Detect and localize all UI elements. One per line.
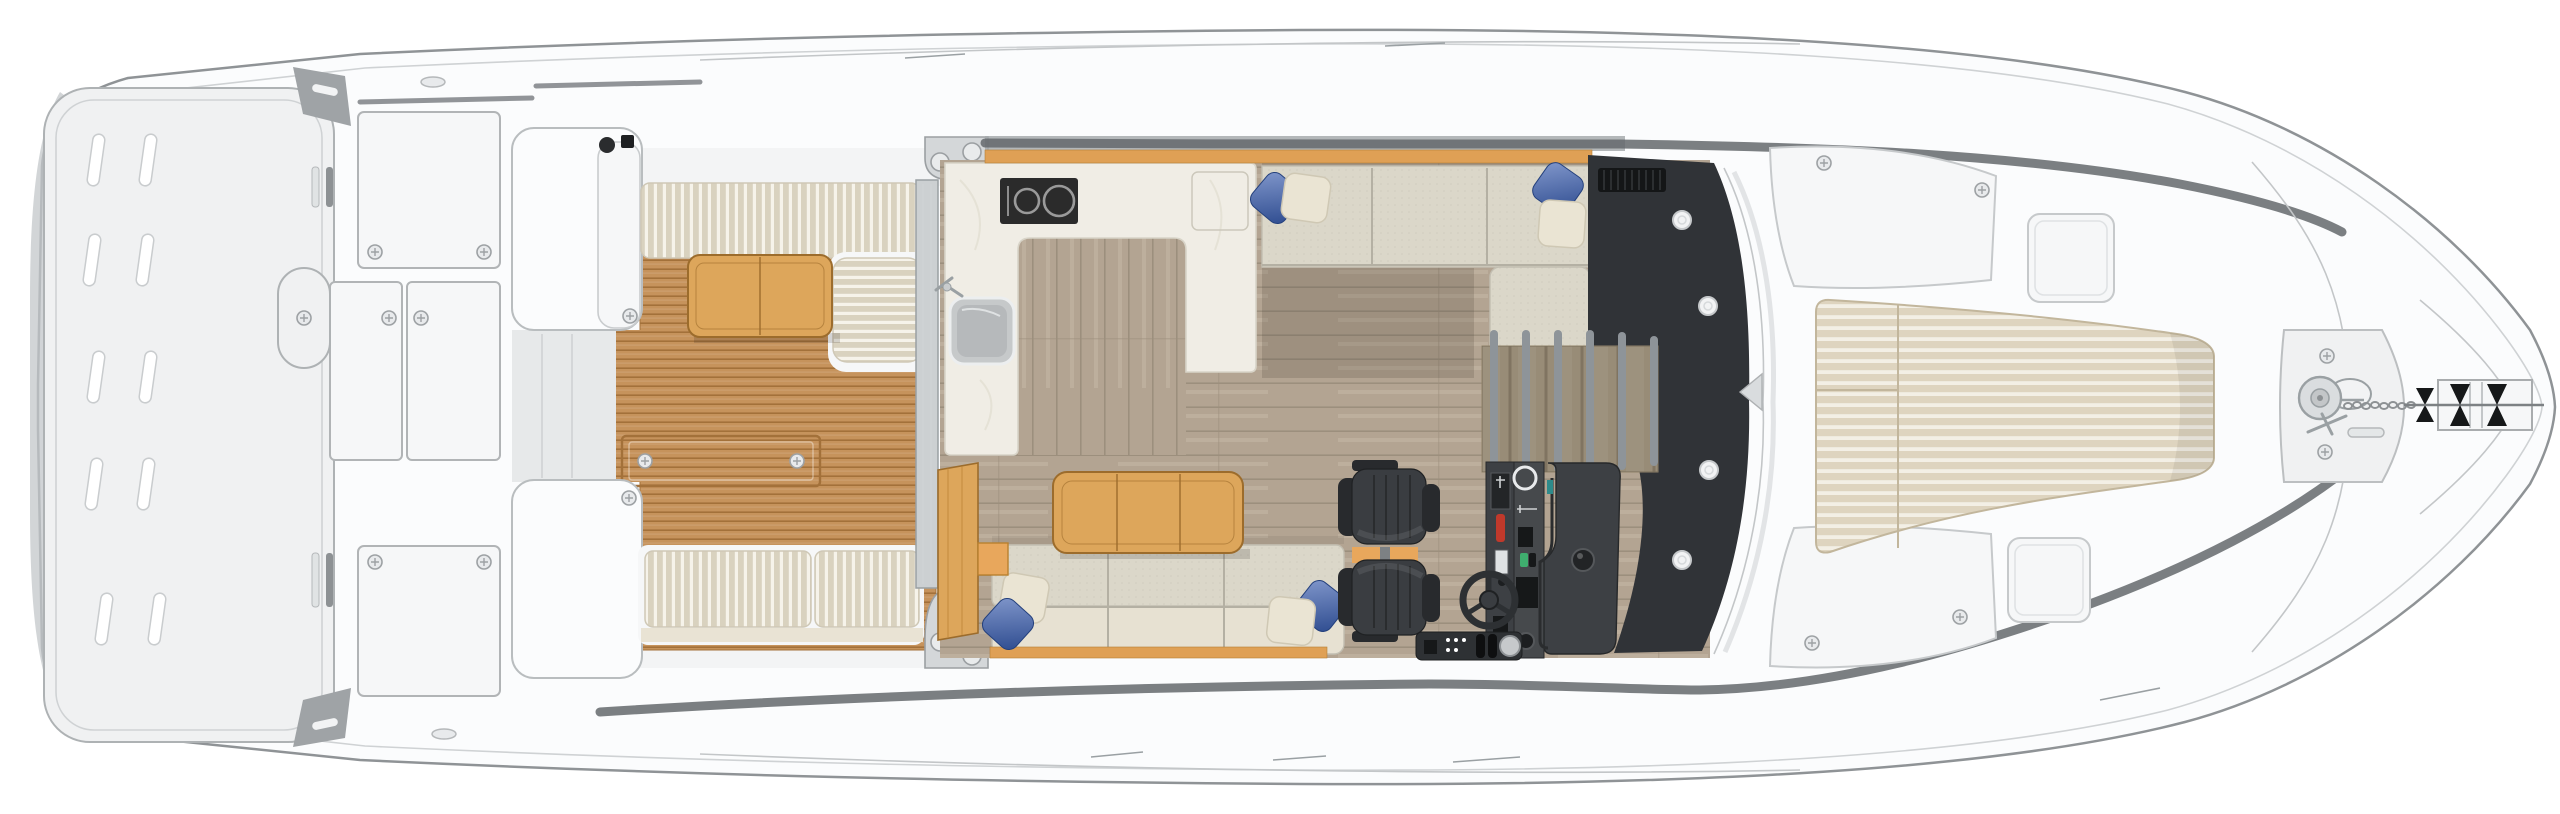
- corner-module-aft: [512, 480, 642, 678]
- aft-bench: [641, 183, 920, 258]
- instrument-square: [1518, 527, 1533, 547]
- window-trim-top: [985, 150, 1592, 163]
- coffee-table: [1053, 472, 1250, 559]
- cockpit-table: [688, 255, 840, 343]
- floor-shadow-under-bench: [1262, 268, 1474, 378]
- cockpit-coaming-top: [614, 148, 944, 186]
- wet-bar-module: [512, 128, 642, 330]
- swim-platform: [30, 67, 351, 747]
- sink: [950, 298, 1014, 364]
- dash-body: [1540, 463, 1620, 654]
- teal-indicator: [1547, 480, 1553, 494]
- transom-locker-top: [358, 112, 500, 268]
- bulkhead-door: [916, 180, 938, 588]
- foredeck-hatch-bottom: [2008, 538, 2090, 622]
- stairs-down: [1482, 346, 1658, 472]
- pillow-cream: [1537, 199, 1586, 248]
- windshield-speaker: [1673, 551, 1691, 569]
- access-panel-bottom: [1770, 526, 1996, 667]
- deck-plan-canvas: [0, 0, 2560, 814]
- foredeck-hatch-top: [2028, 214, 2114, 302]
- pillow-cream: [1266, 596, 1317, 647]
- display: [1516, 577, 1538, 608]
- pillow-cream: [1280, 172, 1332, 224]
- windshield-speaker: [1700, 461, 1718, 479]
- access-panel-top: [1770, 147, 1996, 288]
- walkthrough-deck: [512, 330, 616, 482]
- forward-bench: [638, 545, 924, 645]
- cockpit: [512, 128, 988, 678]
- window-trim-bottom: [990, 647, 1327, 658]
- wood-step: [978, 543, 1008, 575]
- platform-surface: [44, 88, 334, 742]
- joystick: [1572, 549, 1594, 571]
- throttle-pad: [1424, 640, 1437, 654]
- throttle-lever-2: [1488, 634, 1497, 658]
- green-button: [1520, 553, 1528, 567]
- windshield-speaker: [1699, 297, 1717, 315]
- throttle-lever-1: [1476, 634, 1485, 658]
- windshield-speaker: [1673, 211, 1691, 229]
- red-lever: [1496, 514, 1505, 542]
- deck-plan-illustration: [0, 0, 2560, 814]
- throttle-strip: [1416, 632, 1522, 660]
- compass-puck: [1500, 636, 1520, 656]
- gunwale-emblem-top: [421, 77, 445, 87]
- two-burner-cooktop: [1000, 178, 1078, 224]
- transom-locker-mid-right: [407, 282, 500, 460]
- switch-fitting: [621, 135, 634, 148]
- gauge: [1495, 550, 1508, 574]
- deck-light-knob: [599, 137, 615, 153]
- dark-button: [1529, 553, 1536, 567]
- mooring-slot: [2348, 428, 2384, 437]
- bench-l-return: [1490, 267, 1590, 359]
- gunwale-emblem-bottom: [432, 729, 456, 739]
- transom-locker-mid-left: [330, 282, 402, 460]
- galley-aisle-floor: [1018, 238, 1186, 455]
